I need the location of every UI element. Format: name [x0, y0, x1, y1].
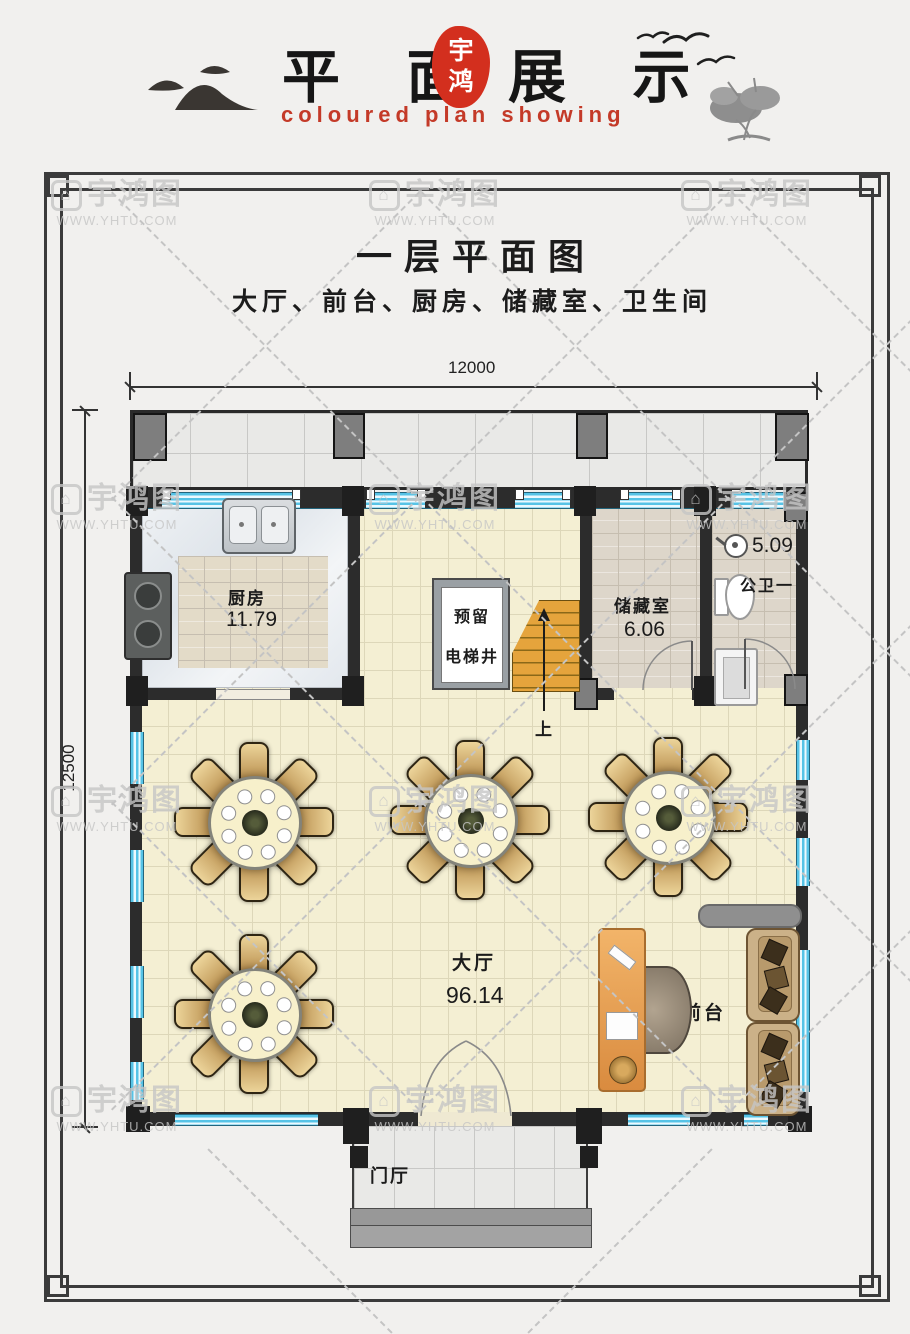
plate — [219, 803, 239, 823]
frame-corner-square — [47, 1275, 69, 1297]
tree-sketch-icon — [698, 70, 798, 142]
column — [333, 413, 365, 459]
column — [574, 486, 596, 516]
dining-table — [388, 738, 548, 898]
plate — [649, 838, 669, 858]
centerpiece — [656, 805, 682, 831]
plate — [672, 837, 692, 857]
plate — [219, 826, 239, 846]
stairs-up-label: 上 — [535, 715, 552, 740]
dimension-height: 12500 — [59, 723, 79, 813]
porch-column — [576, 1108, 602, 1144]
centerpiece — [242, 810, 268, 836]
hall-label: 大厅 — [452, 948, 496, 975]
dimension-line-top — [130, 386, 818, 388]
window — [130, 1062, 144, 1100]
table-top — [424, 774, 518, 868]
wall-segment — [425, 490, 515, 508]
desk-phone — [608, 945, 637, 971]
porch-column-base — [350, 1146, 368, 1168]
plate — [633, 821, 653, 841]
mountain-sketch-icon — [140, 42, 265, 120]
entry-double-doors — [418, 1038, 514, 1116]
plate — [219, 995, 239, 1015]
plate — [235, 787, 255, 807]
column — [126, 676, 148, 706]
plate — [451, 841, 471, 861]
storage-label: 储藏室 — [614, 592, 671, 617]
column — [784, 492, 808, 522]
window-cap — [366, 489, 375, 500]
desk-keyboard — [606, 1012, 638, 1040]
porch-column-base — [580, 1146, 598, 1168]
plate — [258, 979, 278, 999]
plate — [235, 843, 255, 863]
dimension-width: 12000 — [448, 358, 495, 378]
plate — [689, 821, 709, 841]
dining-table — [586, 735, 746, 895]
plate — [649, 782, 669, 802]
plate — [474, 785, 494, 805]
plate — [235, 979, 255, 999]
plate — [258, 842, 278, 862]
plate — [274, 803, 294, 823]
table-top — [208, 968, 302, 1062]
plate — [274, 995, 294, 1015]
window-cap — [162, 489, 171, 500]
terrace — [130, 410, 808, 490]
hall-area: 96.14 — [446, 982, 504, 1009]
foyer-label: 门厅 — [370, 1162, 410, 1188]
table-top — [208, 776, 302, 870]
column — [133, 413, 167, 461]
elevator-shaft: 预留 电梯井 — [432, 578, 510, 690]
toilet-door — [744, 638, 796, 690]
shower-head-dot — [732, 542, 738, 548]
kitchen-area: 11.79 — [226, 608, 277, 632]
stairs-arrow — [543, 615, 545, 711]
page: { "header": { "title_left": "平 面", "titl… — [0, 0, 910, 1311]
plan-subtitle: 大厅、前台、厨房、储藏室、卫生间 — [232, 282, 712, 318]
seal-char-1: 宇 — [448, 36, 473, 67]
kitchen-stove — [124, 572, 172, 660]
kitchen-sink — [222, 498, 296, 554]
table-top — [622, 771, 716, 865]
desk-chair — [642, 966, 692, 1054]
storage-area: 6.06 — [624, 618, 665, 642]
plate — [258, 1034, 278, 1054]
elevator-label-1: 预留 — [454, 603, 490, 627]
window-cap — [515, 489, 524, 500]
wall-kitchen-right — [348, 490, 360, 700]
plate — [275, 826, 295, 846]
window — [130, 850, 144, 902]
sofa — [746, 1022, 800, 1116]
toilet-label: 公卫一 — [740, 572, 794, 596]
sofa — [746, 928, 800, 1022]
window — [130, 732, 144, 784]
storage-door — [642, 640, 693, 691]
window — [796, 740, 810, 780]
toilet-area: 5.09 — [752, 534, 793, 558]
porch-step — [350, 1225, 592, 1248]
seal-char-2: 鸿 — [448, 67, 473, 98]
dimension-line-left — [84, 410, 86, 1128]
column — [694, 676, 716, 706]
plate — [490, 801, 510, 821]
centerpiece — [242, 1002, 268, 1028]
kitchen-door-opening — [216, 689, 290, 700]
plate — [672, 782, 692, 802]
stairs-arrow-head — [538, 608, 550, 621]
plate — [435, 801, 455, 821]
plate — [275, 1018, 295, 1038]
column — [342, 486, 364, 516]
partition-wall — [698, 904, 802, 928]
kitchen-label: 厨房 — [228, 584, 266, 609]
window-cap — [620, 489, 629, 500]
centerpiece — [458, 808, 484, 834]
plan-title: 一层平面图 — [356, 228, 596, 280]
elevator-label-2: 电梯井 — [445, 643, 499, 667]
front-desk — [598, 928, 646, 1092]
plate — [451, 785, 471, 805]
dining-table — [172, 740, 332, 900]
porch-column — [343, 1108, 369, 1144]
window-cap — [562, 489, 571, 500]
plate — [435, 824, 455, 844]
floor-plan: 厨房 11.79 预留 电梯井 上 储藏室 6.06 5.09 公卫一 — [130, 410, 818, 1250]
wall-storage-left — [580, 490, 592, 700]
column — [576, 413, 608, 459]
header-subtitle: coloured plan showing — [281, 102, 626, 128]
plate — [491, 824, 511, 844]
frame-corner-square — [859, 175, 881, 197]
plate — [633, 798, 653, 818]
dining-table — [172, 932, 332, 1092]
window — [796, 838, 810, 886]
plate — [219, 1018, 239, 1038]
plate — [474, 840, 494, 860]
column — [342, 676, 364, 706]
column — [126, 486, 148, 516]
window — [628, 1114, 690, 1126]
window — [175, 1114, 318, 1126]
window-cap — [672, 489, 681, 500]
plate — [688, 798, 708, 818]
column — [694, 486, 716, 516]
desk-plant — [609, 1056, 637, 1084]
frame-corner-square — [47, 175, 69, 197]
window — [130, 966, 144, 1018]
plate — [235, 1035, 255, 1055]
column — [126, 1106, 150, 1132]
wall-storage-right — [700, 490, 712, 700]
frame-corner-square — [859, 1275, 881, 1297]
plate — [258, 787, 278, 807]
window-cap — [417, 489, 426, 500]
column — [775, 413, 809, 461]
